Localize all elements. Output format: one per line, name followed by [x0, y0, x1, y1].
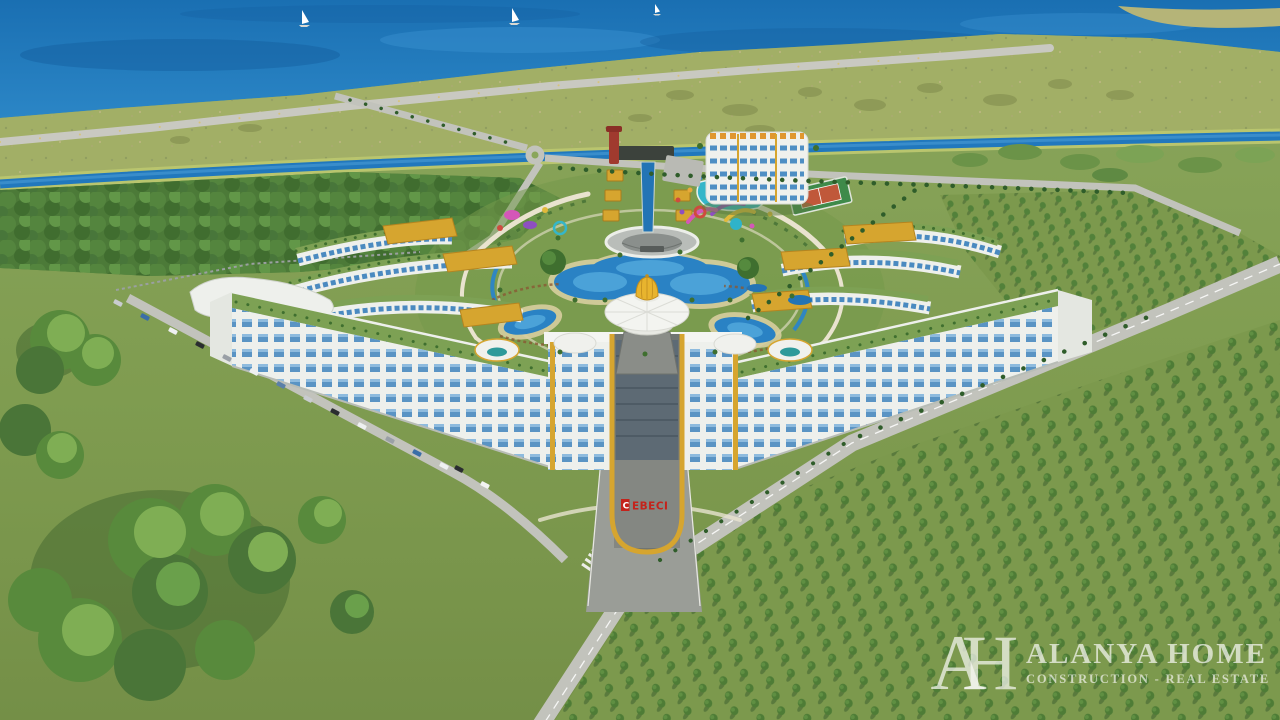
slide-tower	[609, 130, 619, 164]
developer-sign: C EBECI	[621, 499, 668, 513]
entrance-pergola	[616, 146, 674, 160]
sign-text: EBECI	[632, 501, 668, 513]
sign-first-letter: C	[623, 502, 630, 512]
render-canvas: C EBECI	[0, 0, 1280, 720]
resort-aerial-render: C EBECI	[0, 0, 1280, 720]
